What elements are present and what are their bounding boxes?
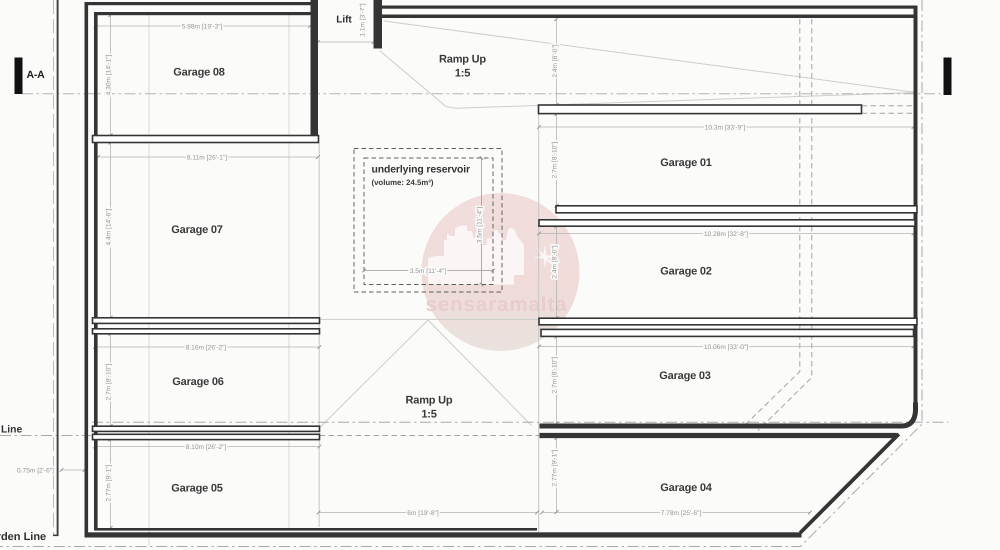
svg-text:0.75m [2'-6"]: 0.75m [2'-6"] [17, 467, 54, 474]
svg-text:2.77m [9'-1"]: 2.77m [9'-1"] [106, 464, 113, 501]
svg-text:Garden Line: Garden Line [0, 531, 46, 543]
svg-text:2.7m [8'-10"]: 2.7m [8'-10"] [106, 363, 113, 400]
svg-text:2.4m [8'-0"]: 2.4m [8'-0"] [552, 44, 559, 77]
svg-text:10.3m [33'-9"]: 10.3m [33'-9"] [705, 124, 746, 131]
svg-text:8.10m [26'-2"]: 8.10m [26'-2"] [186, 444, 227, 451]
svg-text:Ramp Up: Ramp Up [439, 54, 486, 66]
svg-text:3.5m [11'-4"]: 3.5m [11'-4"] [477, 207, 484, 244]
svg-text:Lift: Lift [336, 14, 352, 25]
svg-text:2.77m [9'-1"]: 2.77m [9'-1"] [552, 449, 559, 486]
svg-text:(volume: 24.5m³): (volume: 24.5m³) [372, 178, 434, 187]
svg-text:Garage 08: Garage 08 [173, 67, 224, 79]
svg-text:4.4m [14'-6"]: 4.4m [14'-6"] [106, 208, 113, 245]
svg-text:1.1m [3'-7"]: 1.1m [3'-7"] [360, 3, 367, 36]
svg-text:Garage 07: Garage 07 [171, 224, 222, 236]
svg-text:8.11m [26'-1"]: 8.11m [26'-1"] [187, 154, 227, 161]
svg-text:Garage 03: Garage 03 [659, 370, 710, 382]
svg-text:10.06m [33'-0"]: 10.06m [33'-0"] [704, 344, 748, 351]
svg-text:Garage 02: Garage 02 [660, 266, 711, 278]
svg-text:7.78m [25'-6"]: 7.78m [25'-6"] [661, 510, 702, 517]
svg-text:Garage 05: Garage 05 [171, 483, 222, 495]
svg-text:underlying reservoir: underlying reservoir [372, 165, 471, 176]
svg-text:Line: Line [1, 424, 22, 435]
svg-text:4.30m [14'-1"]: 4.30m [14'-1"] [106, 55, 113, 96]
svg-text:6m [19'-8"]: 6m [19'-8"] [407, 510, 439, 517]
svg-text:A-A: A-A [27, 69, 46, 81]
svg-text:3.5m [11'-4"]: 3.5m [11'-4"] [410, 268, 447, 275]
svg-text:2.7m [8'-10"]: 2.7m [8'-10"] [552, 141, 559, 178]
svg-text:1:5: 1:5 [421, 409, 436, 421]
svg-text:8.16m [26'-2"]: 8.16m [26'-2"] [186, 344, 227, 351]
svg-text:10.28m [32'-8"]: 10.28m [32'-8"] [704, 231, 748, 238]
svg-text:1:5: 1:5 [455, 68, 470, 80]
svg-text:Garage 06: Garage 06 [172, 376, 223, 388]
svg-text:Garage 04: Garage 04 [660, 482, 712, 494]
svg-text:2.4m [8'-0"]: 2.4m [8'-0"] [552, 245, 559, 278]
svg-text:5.98m [19'-3"]: 5.98m [19'-3"] [182, 23, 223, 30]
svg-text:2.7m [8'-10"]: 2.7m [8'-10"] [552, 356, 559, 393]
svg-text:Ramp Up: Ramp Up [406, 395, 453, 407]
svg-text:Garage 01: Garage 01 [660, 157, 711, 169]
svg-text:sensaramalta: sensaramalta [426, 293, 568, 316]
